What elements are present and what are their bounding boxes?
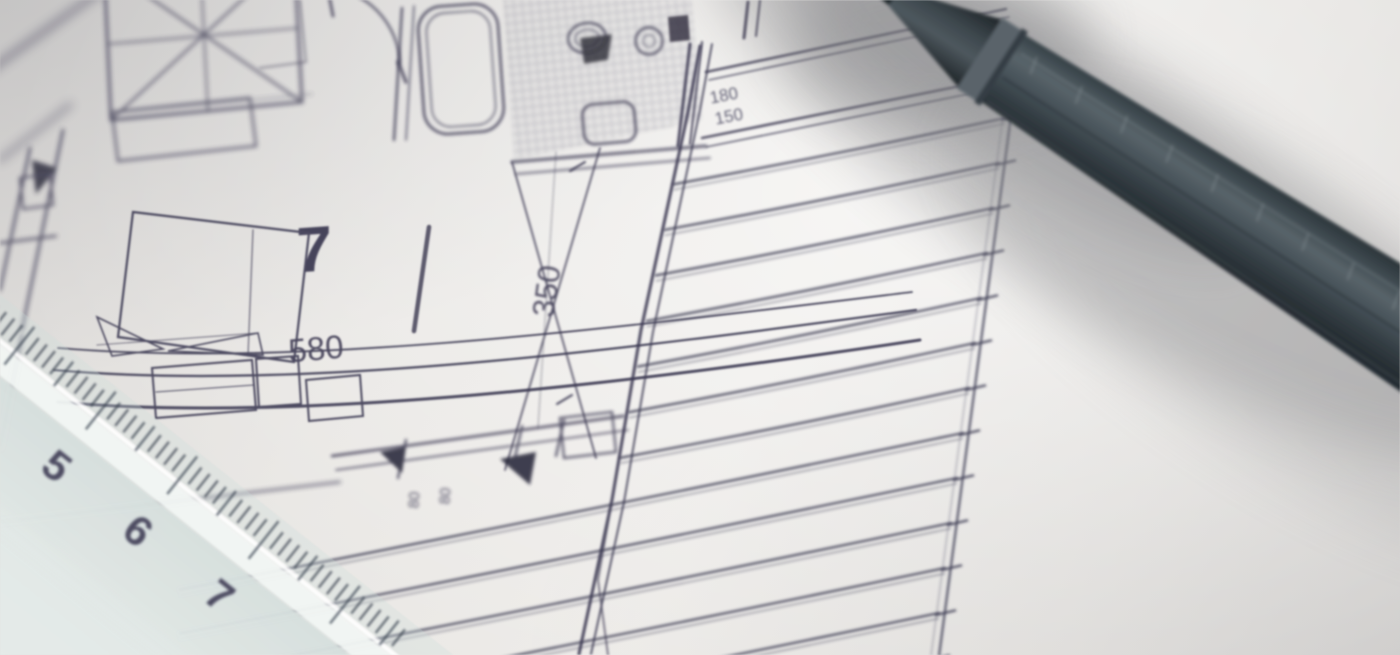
skylight — [104, 0, 312, 161]
bench-3 — [306, 375, 363, 421]
bathroom — [394, 0, 710, 174]
dimension-label-150: 150 — [713, 104, 744, 128]
dimension-label-580: 580 — [287, 328, 345, 370]
bottom-walls: 80 80 — [332, 412, 628, 509]
scene-svg: 180 150 350 7 580 — [0, 0, 1400, 655]
fixture-shadow — [580, 34, 612, 64]
pillow-left — [97, 317, 163, 356]
room-7: 7 580 — [54, 212, 920, 421]
dimension-label-80-left: 80 — [405, 491, 423, 509]
bed — [118, 212, 309, 362]
bathtub — [417, 2, 506, 135]
wall-stub — [414, 227, 429, 331]
dimension-label-80-right: 80 — [436, 487, 454, 505]
door-swing-marker-2 — [380, 447, 406, 473]
photo-architectural-plan: 180 150 350 7 580 — [0, 0, 1400, 655]
dimension-label-350: 350 — [526, 263, 568, 319]
dimension-label-180: 180 — [708, 83, 739, 107]
wall-fill-marker — [668, 15, 690, 42]
door-arc — [260, 0, 406, 82]
room-number-label: 7 — [296, 212, 332, 287]
